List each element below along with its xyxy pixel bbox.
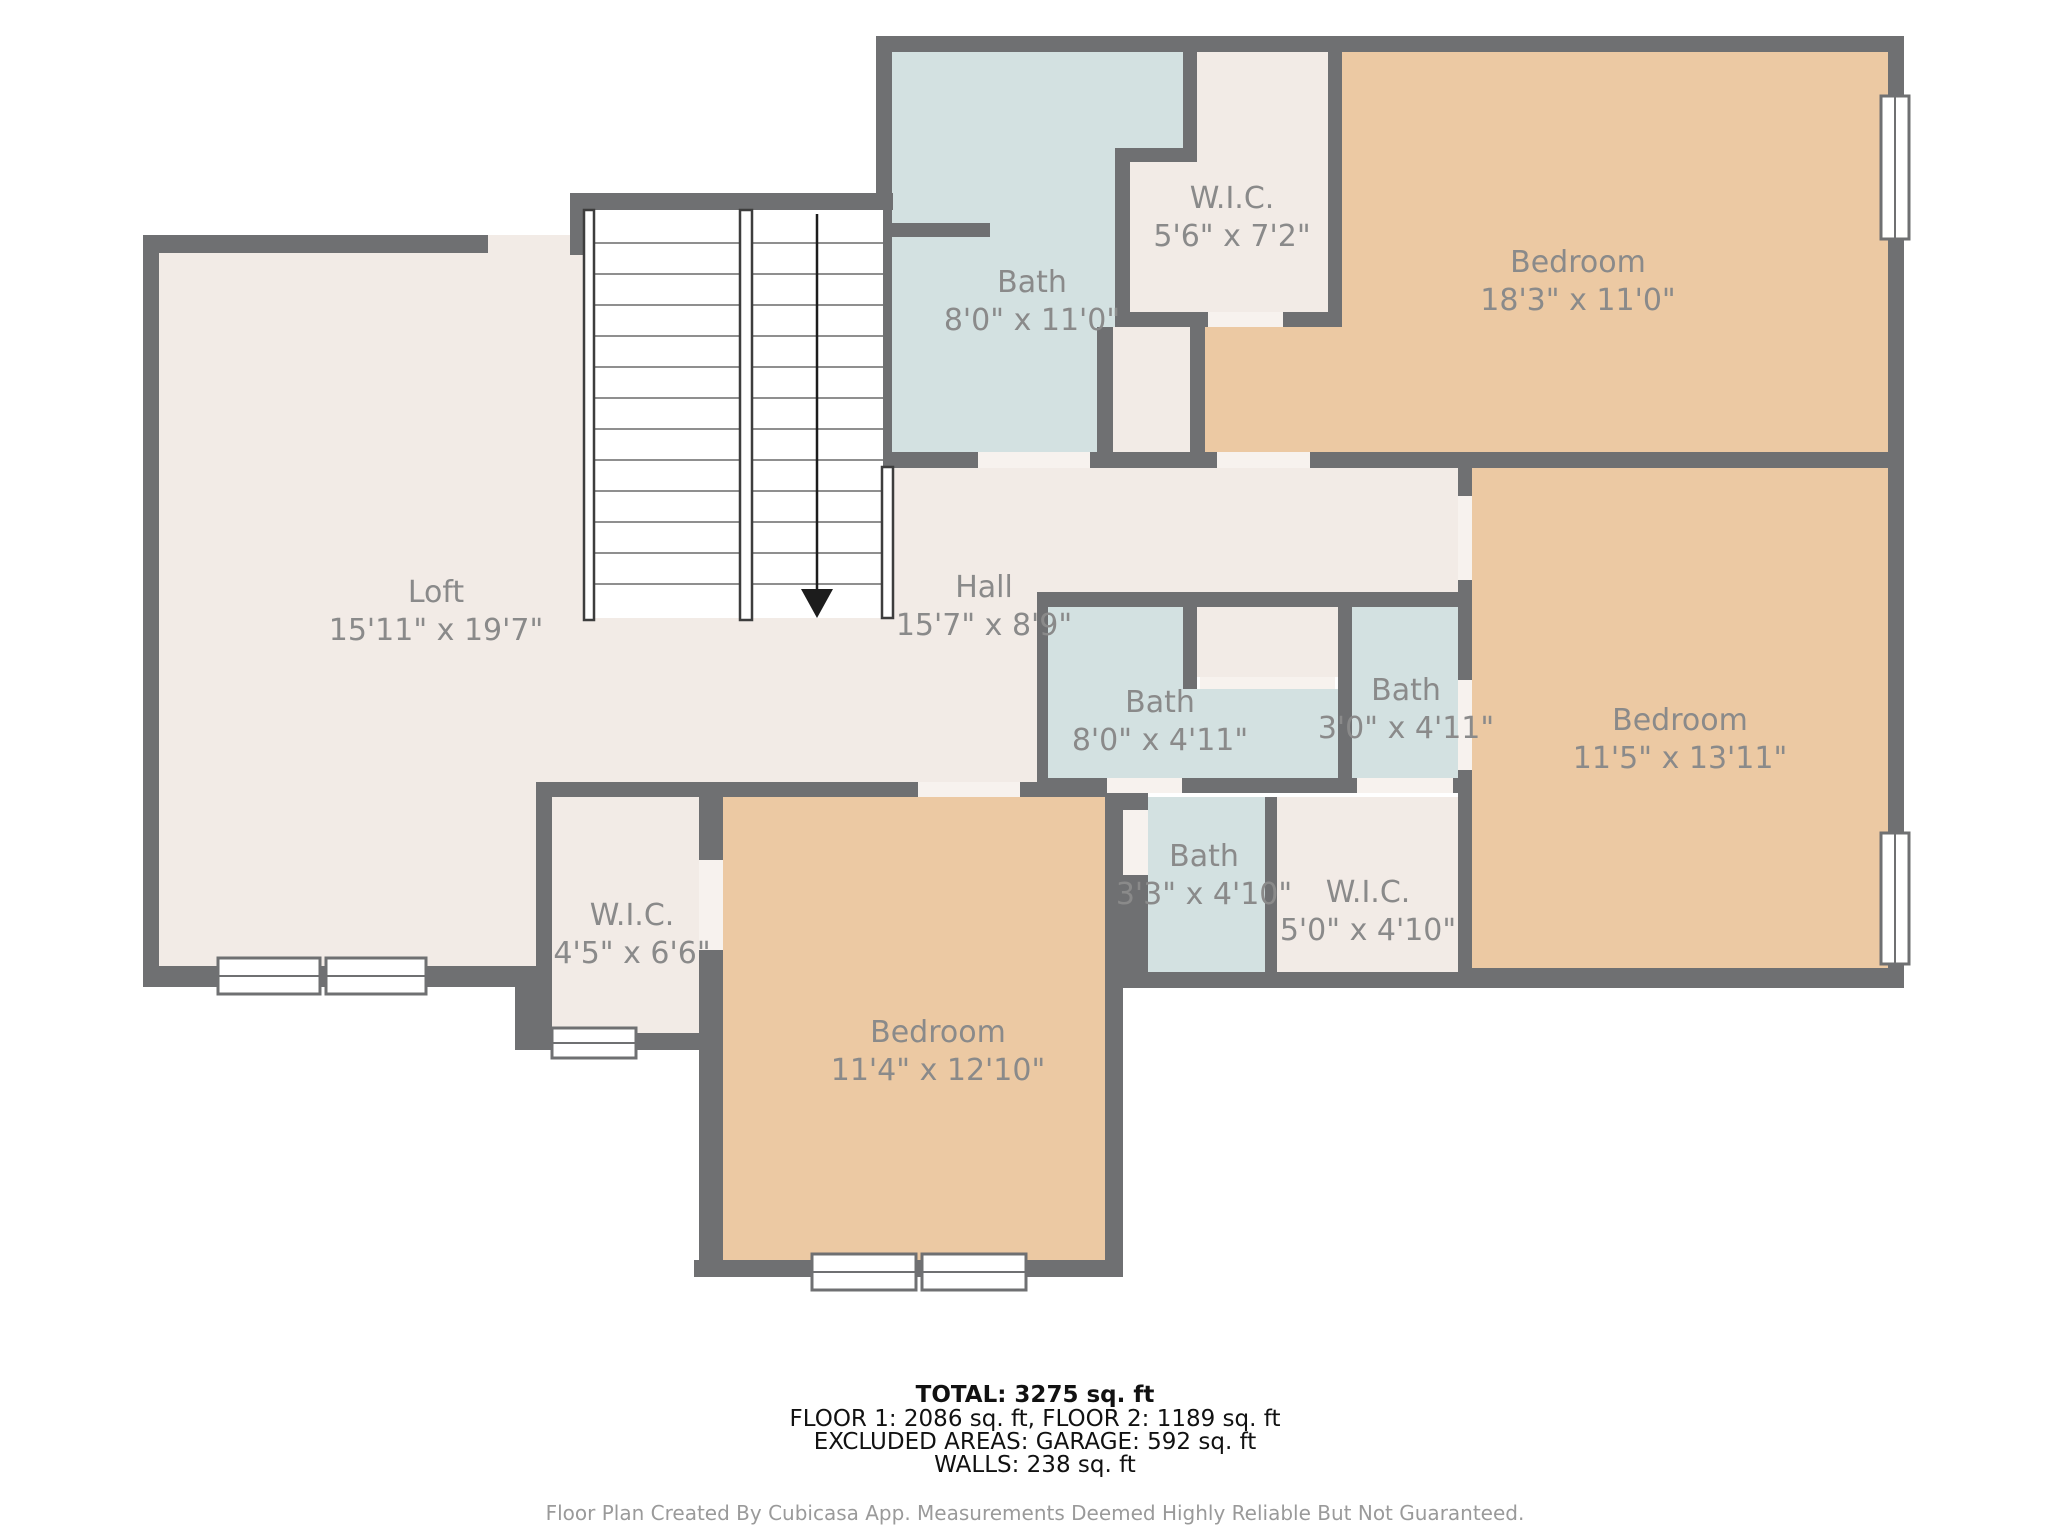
label-wic-left-dims: 4'5" x 6'6" bbox=[553, 936, 710, 971]
label-wic-right-dims: 5'0" x 4'10" bbox=[1280, 913, 1456, 948]
label-hall-name: Hall bbox=[955, 570, 1013, 605]
room-wic-upper bbox=[1197, 52, 1328, 166]
label-loft-dims: 15'11" x 19'7" bbox=[329, 613, 544, 648]
label-bath-lower-dims: 3'3" x 4'10" bbox=[1116, 877, 1292, 912]
wall-wicleft-left bbox=[536, 782, 552, 1033]
door-wic-bedroom-upper bbox=[1208, 312, 1283, 327]
room-loft bbox=[159, 253, 586, 966]
stairs-rail-right bbox=[882, 467, 893, 618]
label-loft-name: Loft bbox=[408, 575, 465, 610]
window-bedroom-upper-right bbox=[1881, 96, 1909, 239]
wall-bedroom-bottom-right bbox=[1105, 782, 1123, 1277]
room-bath-closet bbox=[1197, 607, 1338, 677]
opening-loft-top bbox=[488, 235, 570, 253]
room-bedroom-upper-ext bbox=[1205, 327, 1342, 452]
summary-disclaimer: Floor Plan Created By Cubicasa App. Meas… bbox=[546, 1501, 1525, 1525]
window-bedroom-right bbox=[1881, 833, 1909, 964]
wall-loft-step bbox=[515, 966, 536, 1050]
label-bath-upper-name: Bath bbox=[997, 265, 1067, 300]
wall-closet-stub bbox=[1183, 607, 1197, 689]
stairs bbox=[584, 210, 893, 620]
door-hall-bath-upper bbox=[978, 452, 1090, 468]
label-bath-lower-name: Bath bbox=[1169, 839, 1239, 874]
label-bath-small-dims: 3'0" x 4'11" bbox=[1318, 711, 1494, 746]
label-bath-upper-dims: 8'0" x 11'0" bbox=[944, 303, 1120, 338]
wall-bath-divider bbox=[1338, 592, 1352, 793]
label-bedroom-right-dims: 11'5" x 13'11" bbox=[1573, 741, 1788, 776]
label-bedroom-bottom-dims: 11'4" x 12'10" bbox=[831, 1053, 1046, 1088]
label-wic-right-name: W.I.C. bbox=[1326, 875, 1411, 910]
label-bedroom-upper-dims: 18'3" x 11'0" bbox=[1480, 283, 1675, 318]
wall-bath-right bbox=[1115, 162, 1130, 312]
floor-plan-svg: Bath 8'0" x 11'0" W.I.C. 5'6" x 7'2" Bed… bbox=[0, 0, 2048, 1536]
wall-jog bbox=[1115, 148, 1197, 162]
door-bedroom-bath-lower bbox=[1123, 810, 1148, 875]
room-hall-lower-left bbox=[586, 618, 892, 782]
label-bath-middle-name: Bath bbox=[1125, 685, 1195, 720]
label-hall-dims: 15'7" x 8'9" bbox=[896, 608, 1072, 643]
door-bathmid-bathlower bbox=[1107, 778, 1182, 793]
door-closet-bath-middle bbox=[1200, 677, 1335, 689]
floor-plan-page: Bath 8'0" x 11'0" W.I.C. 5'6" x 7'2" Bed… bbox=[0, 0, 2048, 1536]
label-wic-left-name: W.I.C. bbox=[590, 898, 675, 933]
label-wic-upper-name: W.I.C. bbox=[1190, 181, 1275, 216]
label-bath-small-name: Bath bbox=[1371, 673, 1441, 708]
wall-mid-bottom bbox=[1123, 972, 1472, 988]
label-bedroom-upper-name: Bedroom bbox=[1510, 245, 1646, 280]
wall-bedroom-upper-left bbox=[1328, 52, 1342, 327]
wall-wic-bedroom-shared bbox=[699, 782, 723, 1277]
summary-total: TOTAL: 3275 sq. ft bbox=[916, 1382, 1155, 1408]
stairs-rail-divider bbox=[740, 210, 752, 620]
label-wic-upper-dims: 5'6" x 7'2" bbox=[1153, 219, 1310, 254]
summary-walls: WALLS: 238 sq. ft bbox=[934, 1452, 1136, 1478]
wall-loft-left bbox=[143, 235, 159, 987]
room-vestibule bbox=[1113, 327, 1190, 452]
wall-vestibule-left bbox=[1097, 327, 1113, 452]
summary-footer: TOTAL: 3275 sq. ft FLOOR 1: 2086 sq. ft,… bbox=[546, 1382, 1525, 1525]
room-bath-upper-lower bbox=[892, 52, 1115, 452]
wall-top bbox=[876, 36, 1904, 52]
stairs-rail-left bbox=[584, 210, 594, 620]
wall-bath-wic-divider bbox=[1183, 52, 1197, 148]
wall-bath-stub bbox=[892, 223, 990, 237]
door-bathsmall-wicright bbox=[1357, 778, 1453, 793]
label-bedroom-right-name: Bedroom bbox=[1612, 703, 1748, 738]
wall-baths-top bbox=[1037, 592, 1472, 607]
window-wic-left bbox=[552, 1028, 636, 1058]
label-bath-middle-dims: 8'0" x 4'11" bbox=[1072, 723, 1248, 758]
wall-stairs-top bbox=[570, 193, 893, 210]
door-hall-bedroom-bottom bbox=[918, 782, 1020, 797]
door-hall-bedroom-right bbox=[1458, 496, 1472, 580]
label-bedroom-bottom-name: Bedroom bbox=[870, 1015, 1006, 1050]
door-hall-bedroom-upper bbox=[1217, 452, 1310, 468]
wall-bedroomright-bottom bbox=[1458, 968, 1904, 988]
wall-vestibule-right bbox=[1190, 327, 1205, 452]
